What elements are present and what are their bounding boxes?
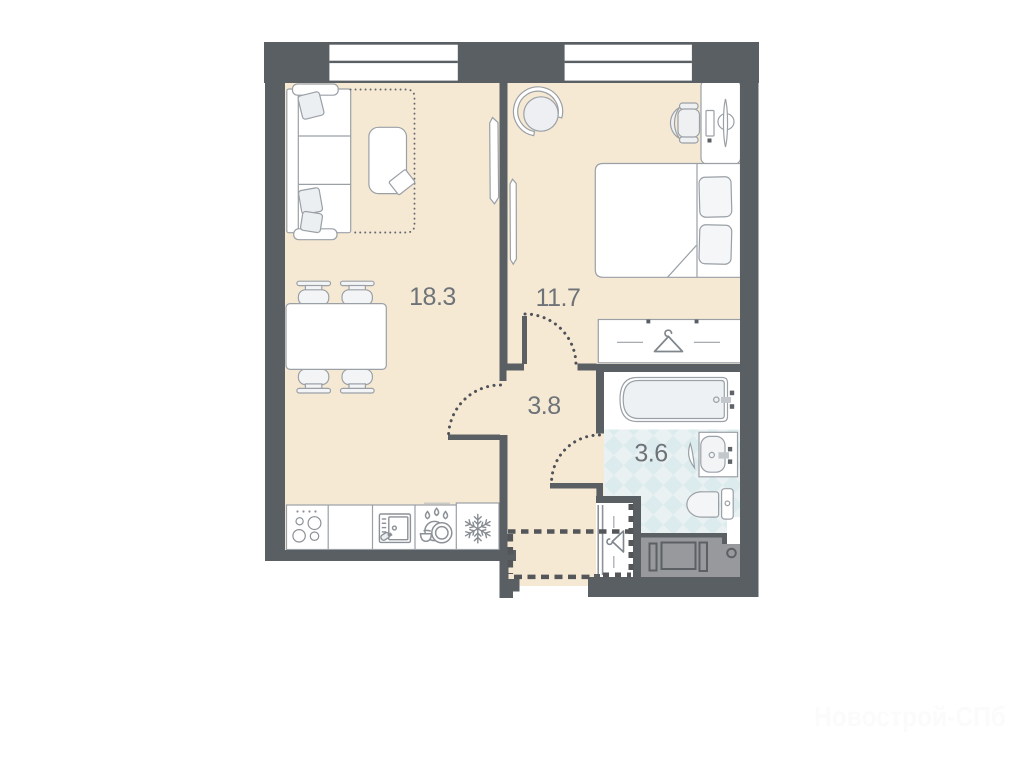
svg-text:11.7: 11.7 — [536, 284, 581, 312]
svg-text:Новострой-СПб: Новострой-СПб — [814, 701, 1006, 732]
svg-text:18.3: 18.3 — [409, 283, 456, 311]
svg-text:3.8: 3.8 — [527, 392, 560, 420]
svg-text:3.6: 3.6 — [634, 440, 667, 468]
